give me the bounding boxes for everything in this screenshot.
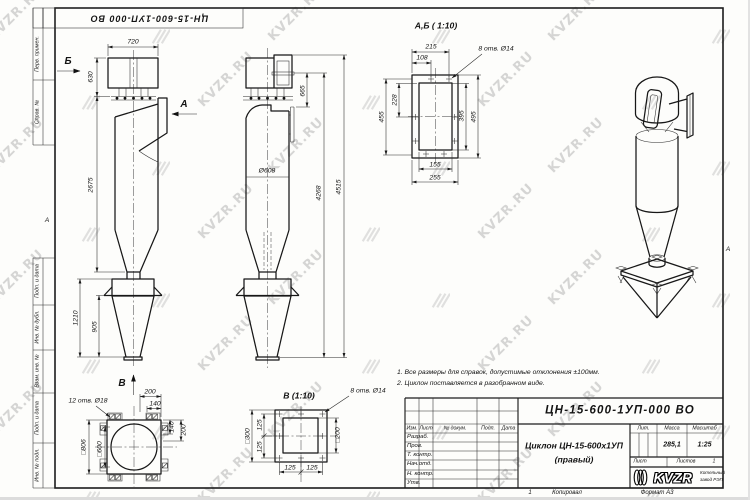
note-1: 1. Все размеры для справок, допустимые о… [397, 370, 600, 377]
tb-col-data: Дата [502, 426, 516, 431]
section-v-dim-125-left-2: 125 [258, 441, 265, 452]
tb-col-podp: Подп. [481, 426, 495, 431]
section-v-dim-125-bottom-1: 125 [284, 466, 295, 473]
kvzr-coil-icon [633, 469, 648, 491]
title-block-name-line1: Циклон ЦН-15-600х1УП [525, 442, 623, 451]
fold-mark-left: А [45, 218, 49, 225]
front-dim-2675: 2675 [89, 177, 96, 192]
section-v-dim-outer: □300 [246, 428, 253, 443]
support-dim-200-right: 200 [182, 424, 189, 435]
section-ab-dim-255: 255 [429, 176, 440, 183]
tb-mass-value: 285,1 [663, 442, 681, 449]
section-v-view [262, 406, 336, 482]
support-dim-140-right: 140 [170, 421, 177, 432]
section-v-dim-inner: □200 [336, 427, 343, 442]
tb-scale-label: Масштаб [692, 426, 716, 431]
dimension-lines [57, 44, 482, 475]
side-view [236, 48, 299, 368]
view-arrow-label-v: В [118, 379, 125, 389]
drawing-sheet: KVZR.RUKVZR.RUKVZR.RUKVZR.RUKVZR.RUKVZR.… [0, 0, 750, 500]
margin-label-inv-podl: Инв. № подл. [35, 448, 40, 481]
kvzr-caption-line2: завод РЭП [700, 478, 723, 483]
section-ab-dim-455: 455 [380, 111, 387, 122]
tb-scale-value: 1:25 [697, 442, 711, 449]
footer-format-label: Формат А3 [641, 490, 674, 496]
tb-mass-label: Масса [664, 426, 679, 431]
tb-row-nkontr: Н. контр. [407, 472, 434, 478]
tb-row-utv: Утв. [407, 481, 420, 487]
support-dim-200-top: 200 [144, 390, 155, 397]
tb-sheet-label: Лист [633, 459, 646, 464]
section-ab-dim-395: 395 [460, 110, 467, 121]
footer-copied-label: Копировал [552, 490, 582, 496]
top-stamp-doc-number: ЦН-15-600-1УП-000 ВО [90, 14, 208, 23]
tb-col-izm: Изм. [406, 426, 417, 431]
margin-label-vzam-inv: Взам. инв. № [35, 354, 40, 387]
front-dim-630: 630 [89, 71, 96, 82]
margin-label-podp-data-2: Подп. и дата [35, 401, 40, 435]
view-arrow-label-a: А [180, 100, 187, 110]
support-dim-inner-square: □600 [98, 441, 105, 456]
tb-col-dokum: № докум. [444, 426, 467, 431]
kvzr-logo: KVZR [654, 470, 693, 485]
view-arrow-label-b: Б [64, 57, 71, 67]
section-v-title: В (1:10) [283, 392, 315, 401]
fold-mark-right: А [726, 247, 730, 254]
support-dim-outer-square: □806 [82, 439, 89, 454]
margin-label-perv-primen: Перв. примен. [35, 36, 40, 72]
tb-lit-label: Лит. [637, 426, 649, 431]
section-ab-holes-note: 8 отв. Ø14 [478, 47, 513, 54]
margin-label-inv-dubl: Инв. № дубл. [35, 310, 40, 343]
margin-label-sprav-no: Справ. № [35, 100, 40, 125]
support-plan-view [95, 406, 177, 487]
tb-sheets-value: 1 [713, 459, 716, 464]
section-ab-dim-155: 155 [429, 163, 440, 170]
tb-row-prov: Пров. [407, 444, 423, 450]
side-dim-608: Ø608 [259, 169, 276, 176]
tb-sheets-label: Листов [677, 459, 696, 464]
front-dim-720: 720 [127, 40, 138, 47]
footer-page-number: 1 [528, 490, 531, 496]
section-ab-dim-215: 215 [425, 45, 436, 52]
title-block-name-line2: (правый) [555, 456, 594, 465]
front-dim-905: 905 [93, 321, 100, 332]
support-dim-140-top: 140 [149, 402, 160, 409]
support-holes-note: 12 отв. Ø18 [68, 399, 107, 406]
tb-col-list: Лист [419, 426, 432, 431]
section-ab-view [408, 68, 461, 165]
note-2: 2. Циклон поставляется в разобранном вид… [397, 381, 545, 388]
section-ab-title: А,Б ( 1:10) [415, 22, 457, 31]
tb-row-razrab: Разраб. [407, 435, 428, 441]
section-ab-dim-495: 495 [472, 111, 479, 122]
section-v-dim-125-left-1: 125 [258, 419, 265, 430]
isometric-view [616, 77, 698, 318]
title-block-doc-number: ЦН-15-600-1УП-000 ВО [545, 405, 695, 417]
front-view [104, 50, 167, 368]
side-dim-4515: 4515 [337, 179, 344, 194]
margin-label-podp-data-1: Подп. и дата [35, 264, 40, 298]
side-dim-4268: 4268 [317, 185, 324, 200]
section-v-dim-125-bottom-2: 125 [306, 466, 317, 473]
kvzr-caption-line1: Котельный [700, 471, 725, 476]
front-dim-1210: 1210 [74, 310, 81, 325]
tb-row-nachotd: Нач.отд. [407, 462, 432, 468]
side-dim-665: 665 [301, 85, 308, 96]
tb-row-tkontr: Т. контр. [407, 453, 432, 459]
section-ab-dim-108: 108 [416, 56, 427, 63]
section-ab-dim-228: 228 [393, 94, 400, 105]
section-v-holes-note: 8 отв. Ø14 [350, 389, 385, 396]
